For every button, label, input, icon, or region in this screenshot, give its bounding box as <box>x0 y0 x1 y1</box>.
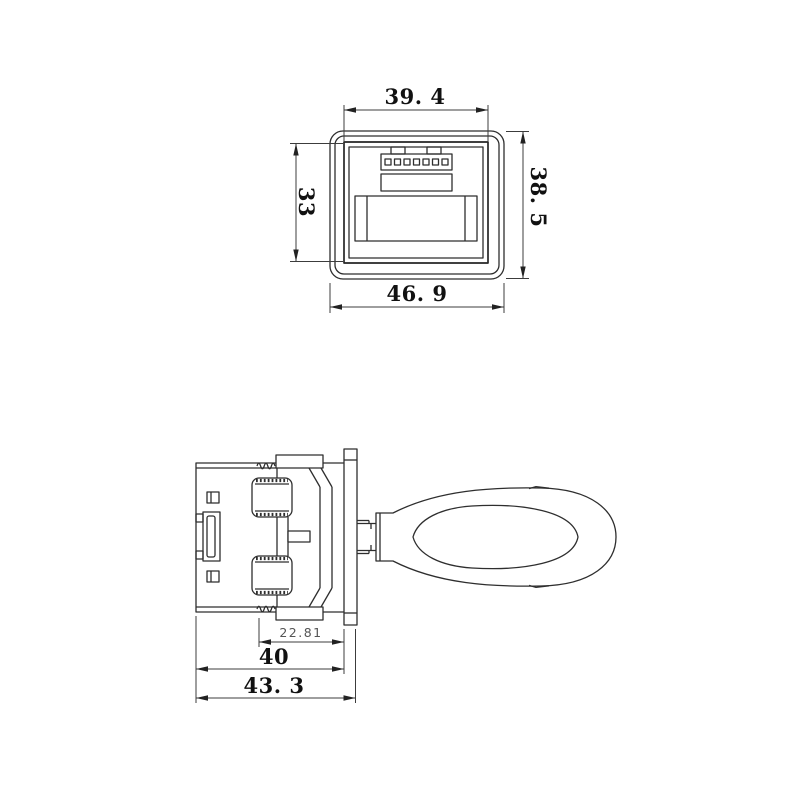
side-snap-clip <box>288 463 344 612</box>
side-mounting-flange <box>344 449 357 625</box>
dim-label-front-outer-width: 46. 9 <box>387 281 448 306</box>
dimension-front-outer-width: 46. 9 <box>330 281 504 313</box>
dim-label-front-outer-height: 38. 5 <box>526 167 551 228</box>
dim-label-side-clip-depth: 22.81 <box>279 625 322 640</box>
technical-drawing-sheet: 39. 4 33 38. 5 46. 9 <box>0 0 800 800</box>
dim-label-front-inner-height: 33 <box>294 187 319 217</box>
front-tab-left <box>391 147 405 154</box>
drawing-canvas: 39. 4 33 38. 5 46. 9 <box>0 0 800 800</box>
side-handle-loop <box>376 487 616 588</box>
side-cap-top <box>276 455 323 468</box>
side-latch-pad-bottom <box>252 556 292 595</box>
side-cap-bottom <box>276 607 323 620</box>
side-connector-slot <box>196 512 220 561</box>
dim-label-side-overall-depth: 43. 3 <box>244 673 305 698</box>
dimension-front-inner-width: 39. 4 <box>344 84 488 141</box>
front-outer-bezel <box>330 131 504 279</box>
side-latch-pad-top <box>252 478 292 517</box>
front-pin-contacts <box>385 159 448 165</box>
front-label-recess <box>381 174 452 191</box>
front-view: 39. 4 33 38. 5 46. 9 <box>290 84 551 313</box>
dim-label-front-inner-width: 39. 4 <box>385 84 446 109</box>
side-stem <box>357 521 377 554</box>
side-terminal-hole-bottom <box>207 571 219 582</box>
dimension-front-outer-height: 38. 5 <box>506 132 551 279</box>
front-window <box>355 196 477 241</box>
dim-label-side-body-depth: 40 <box>259 644 289 669</box>
front-face-outer <box>344 142 488 263</box>
front-inner-bezel <box>335 136 499 274</box>
side-view: 22.81 40 43. 3 <box>196 449 616 703</box>
front-tab-right <box>427 147 441 154</box>
side-terminal-hole-top <box>207 492 219 503</box>
